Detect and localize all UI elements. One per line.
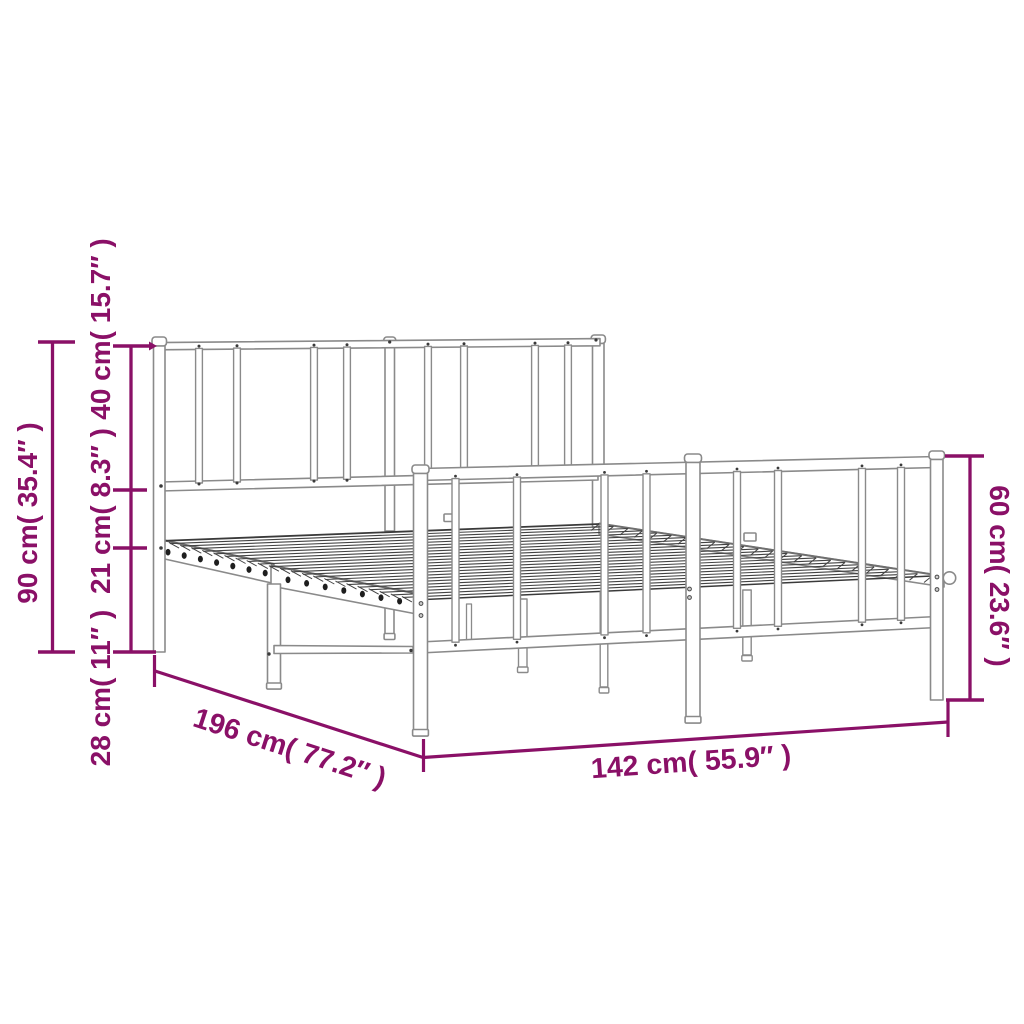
svg-text:60 cm( 23.6″ ): 60 cm( 23.6″ ) xyxy=(984,485,1015,667)
svg-text:21 cm( 8.3″ ): 21 cm( 8.3″ ) xyxy=(85,428,116,594)
svg-text:40 cm( 15.7″ ): 40 cm( 15.7″ ) xyxy=(85,238,116,420)
svg-text:28 cm( 11″ ): 28 cm( 11″ ) xyxy=(85,610,116,767)
svg-text:90 cm( 35.4″ ): 90 cm( 35.4″ ) xyxy=(12,422,43,604)
